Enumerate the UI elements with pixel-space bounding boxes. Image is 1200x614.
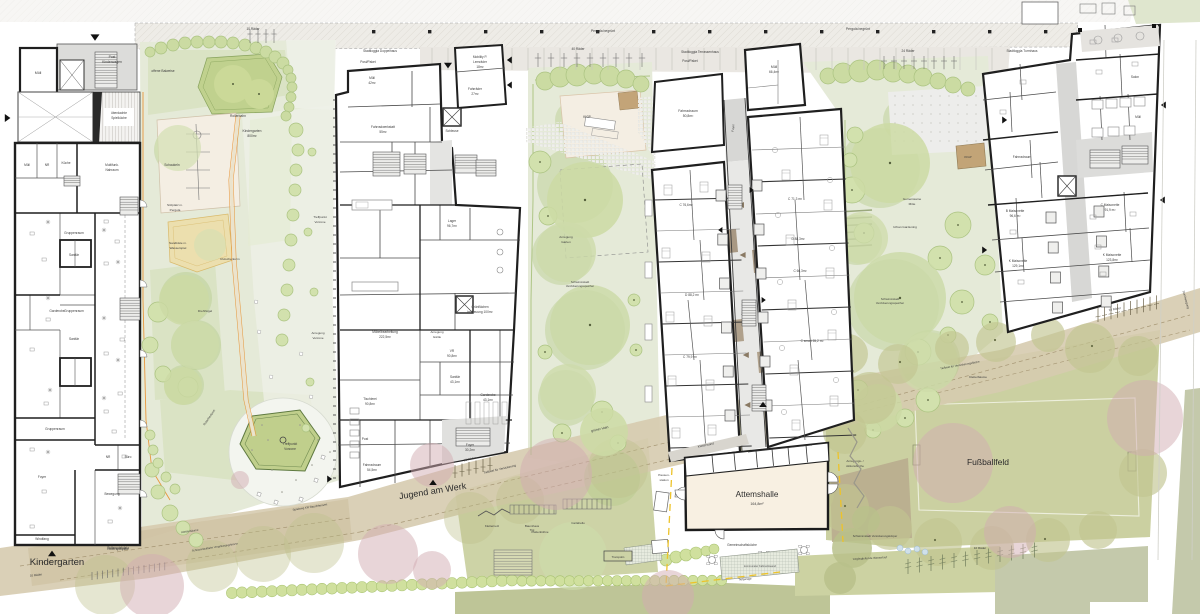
svg-text:Mobility P.: Mobility P. <box>473 55 487 59</box>
svg-text:10 Räder: 10 Räder <box>974 546 986 550</box>
svg-text:NR: NR <box>45 163 50 167</box>
svg-text:Salon: Salon <box>1131 75 1139 79</box>
svg-text:24 Räder: 24 Räder <box>901 49 915 53</box>
svg-text:Anregung: Anregung <box>430 330 443 334</box>
svg-text:C 76,6m²: C 76,6m² <box>679 203 692 207</box>
svg-text:Rollerbahn: Rollerbahn <box>230 114 246 118</box>
svg-text:Möbelbearbeitung: Möbelbearbeitung <box>372 330 398 334</box>
svg-text:K Maisonette: K Maisonette <box>1103 253 1122 257</box>
svg-text:54,5m²: 54,5m² <box>367 468 377 472</box>
svg-text:30,2m²: 30,2m² <box>465 448 475 452</box>
svg-text:96,6 m²: 96,6 m² <box>1010 214 1021 218</box>
svg-text:Nahraum: Nahraum <box>105 168 118 172</box>
svg-text:Sanitär: Sanitär <box>450 375 461 379</box>
svg-text:überdachte: überdachte <box>111 111 127 115</box>
svg-text:Carlahello: Carlahello <box>571 521 585 525</box>
svg-text:D 88,3m²: D 88,3m² <box>791 237 804 241</box>
svg-text:55m²: 55m² <box>379 130 386 134</box>
svg-text:Pergola: Pergola <box>170 208 181 212</box>
svg-text:Verzickerungsspeicher: Verzickerungsspeicher <box>876 301 904 305</box>
svg-text:Post/Paket: Post/Paket <box>682 59 698 63</box>
svg-text:Foyer: Foyer <box>38 475 47 479</box>
svg-text:Sandkiste m.: Sandkiste m. <box>169 241 187 245</box>
svg-text:66,4m²: 66,4m² <box>769 70 779 74</box>
svg-text:Mitte: Mitte <box>909 202 916 206</box>
svg-text:Gemeinsame: Gemeinsame <box>903 197 922 201</box>
svg-text:123,8m²: 123,8m² <box>1106 258 1118 262</box>
svg-text:90,8m²: 90,8m² <box>447 354 457 358</box>
svg-text:NR: NR <box>106 455 111 459</box>
svg-text:Kindergarten: Kindergarten <box>30 557 84 568</box>
svg-text:Gruppenraum: Gruppenraum <box>64 231 84 235</box>
svg-text:C Maisonette: C Maisonette <box>1101 203 1120 207</box>
svg-text:C 71,3 m²: C 71,3 m² <box>788 197 802 201</box>
svg-text:Müll: Müll <box>369 76 375 80</box>
svg-text:Lager: Lager <box>448 219 457 223</box>
svg-text:800m²: 800m² <box>247 134 257 138</box>
svg-text:Garderobe: Garderobe <box>49 309 64 313</box>
svg-text:43,1m²: 43,1m² <box>450 380 460 384</box>
svg-text:Vorzone: Vorzone <box>314 220 325 224</box>
svg-text:Sitzplatz m.: Sitzplatz m. <box>167 203 183 207</box>
svg-text:Post: Post <box>109 55 116 59</box>
svg-text:C 79,9 m²: C 79,9 m² <box>683 355 697 359</box>
svg-text:27m²: 27m² <box>471 92 478 96</box>
svg-text:Vorzone: Vorzone <box>284 447 296 451</box>
svg-text:90,8m²: 90,8m² <box>365 402 375 406</box>
svg-text:Stadtloggia Doppelhaus: Stadtloggia Doppelhaus <box>363 49 397 53</box>
svg-text:Stadtloggia Turmhaus: Stadtloggia Turmhaus <box>1006 49 1037 53</box>
svg-text:kommunaler Kabinettswand: kommunaler Kabinettswand <box>744 564 777 568</box>
svg-text:Spielküche: Spielküche <box>111 116 127 120</box>
svg-text:50,8m²: 50,8m² <box>683 114 694 118</box>
svg-text:Aktionsfläche: Aktionsfläche <box>846 464 864 468</box>
svg-text:Tischlerei: Tischlerei <box>363 397 377 401</box>
svg-text:Sanitär: Sanitär <box>69 337 80 341</box>
svg-text:18m²: 18m² <box>476 65 483 69</box>
svg-text:Plattenbühne: Plattenbühne <box>531 530 548 534</box>
svg-text:164,8m²: 164,8m² <box>750 502 764 506</box>
svg-text:Schaukeln: Schaukeln <box>164 163 180 167</box>
svg-text:Fahrräder: Fahrräder <box>468 87 483 91</box>
svg-text:Fahrradraum: Fahrradraum <box>1013 155 1032 159</box>
svg-text:129,1m²: 129,1m² <box>1012 264 1024 268</box>
svg-text:Müll: Müll <box>24 163 30 167</box>
svg-text:96,7m²: 96,7m² <box>447 224 457 228</box>
svg-text:Wasserspiel: Wasserspiel <box>170 246 187 250</box>
svg-text:C 66,3m²: C 66,3m² <box>793 269 806 273</box>
svg-text:station: station <box>659 478 668 482</box>
svg-text:VR: VR <box>450 349 455 353</box>
svg-text:Küche: Küche <box>61 161 70 165</box>
svg-text:42m²: 42m² <box>368 81 375 85</box>
svg-text:222,5m²: 222,5m² <box>379 335 391 339</box>
svg-text:Schwimmstadt Versickerungskörp: Schwimmstadt Versickerungskörper <box>853 534 898 538</box>
svg-text:KIGP: KIGP <box>964 155 971 159</box>
svg-text:Pergola begrünt: Pergola begrünt <box>846 27 870 31</box>
svg-text:Pergola begrünt: Pergola begrünt <box>591 29 615 33</box>
svg-text:Post/Paket: Post/Paket <box>360 60 376 64</box>
svg-text:Kletternetz: Kletternetz <box>485 524 500 528</box>
svg-text:10 Räder: 10 Räder <box>246 27 260 31</box>
svg-text:Trampolin: Trampolin <box>612 555 625 559</box>
svg-text:Kinderwagen: Kinderwagen <box>102 60 122 64</box>
svg-text:Stadtloggia Terrassenhaus: Stadtloggia Terrassenhaus <box>681 50 719 54</box>
svg-text:Verzone: Verzone <box>312 336 323 340</box>
svg-text:Anregung: Anregung <box>559 235 573 239</box>
svg-text:Foyer: Foyer <box>466 443 475 447</box>
svg-text:Müll: Müll <box>771 65 777 69</box>
svg-text:Rutschenturm: Rutschenturm <box>220 257 240 261</box>
svg-text:Garderobe: Garderobe <box>480 393 495 397</box>
svg-text:Rollerspielplatz: Rollerspielplatz <box>107 546 129 550</box>
svg-text:KIGP: KIGP <box>583 115 591 119</box>
svg-text:Fahrradwerkstatt: Fahrradwerkstatt <box>371 125 395 129</box>
svg-text:91,9 m²: 91,9 m² <box>1105 208 1116 212</box>
svg-text:Kletterbäume: Kletterbäume <box>969 375 987 379</box>
svg-text:Büro: Büro <box>125 455 132 459</box>
svg-text:Kindergarten: Kindergarten <box>243 129 262 133</box>
svg-text:offene Balweise: offene Balweise <box>151 69 174 73</box>
svg-text:Müll: Müll <box>1135 115 1141 119</box>
svg-text:Sanitär: Sanitär <box>69 253 80 257</box>
svg-text:Treffpunkt: Treffpunkt <box>313 215 327 219</box>
svg-text:Post: Post <box>362 437 368 441</box>
svg-text:Anregung: Anregung <box>311 331 324 335</box>
svg-text:Lernräder: Lernräder <box>473 60 488 64</box>
svg-text:Foyer: Foyer <box>731 124 736 132</box>
svg-text:Fußballfeld: Fußballfeld <box>967 457 1009 467</box>
svg-text:C smart 55,2 m²: C smart 55,2 m² <box>801 339 824 343</box>
svg-text:Pausen-: Pausen- <box>658 473 670 477</box>
svg-text:D 88,2 m²: D 88,2 m² <box>685 293 699 297</box>
svg-text:B Maisonette: B Maisonette <box>1006 209 1025 213</box>
svg-text:Windfang: Windfang <box>35 537 49 541</box>
svg-text:Gärtle: Gärtle <box>433 335 442 339</box>
svg-text:Drehhügel: Drehhügel <box>198 309 213 313</box>
svg-text:Gruppenraum: Gruppenraum <box>45 427 65 431</box>
svg-text:Grünflächen: Grünflächen <box>471 305 489 309</box>
svg-text:Treffpunkt: Treffpunkt <box>283 442 297 446</box>
svg-text:Fahrradraum: Fahrradraum <box>363 463 382 467</box>
svg-text:Gemeinschaftsküche: Gemeinschaftsküche <box>727 543 757 547</box>
svg-text:Attemshalle: Attemshalle <box>736 490 779 499</box>
svg-text:Bewegung: Bewegung <box>104 492 119 496</box>
svg-text:bettreuung 100m²: bettreuung 100m² <box>467 310 492 314</box>
svg-text:43,1m²: 43,1m² <box>483 398 493 402</box>
svg-text:K Maisonette: K Maisonette <box>1009 259 1028 263</box>
svg-text:Fahrradraum: Fahrradraum <box>678 109 698 113</box>
svg-text:40 Räder: 40 Räder <box>571 47 585 51</box>
svg-text:Urban Gardening: Urban Gardening <box>893 225 917 229</box>
svg-text:Gruppenraum: Gruppenraum <box>64 309 84 313</box>
svg-text:Schleuse: Schleuse <box>445 129 458 133</box>
svg-text:Garten: Garten <box>561 240 571 244</box>
svg-text:Müll: Müll <box>35 71 42 75</box>
svg-text:Multifunk.: Multifunk. <box>105 163 119 167</box>
svg-text:Verzickerungsspeicher: Verzickerungsspeicher <box>566 284 594 288</box>
